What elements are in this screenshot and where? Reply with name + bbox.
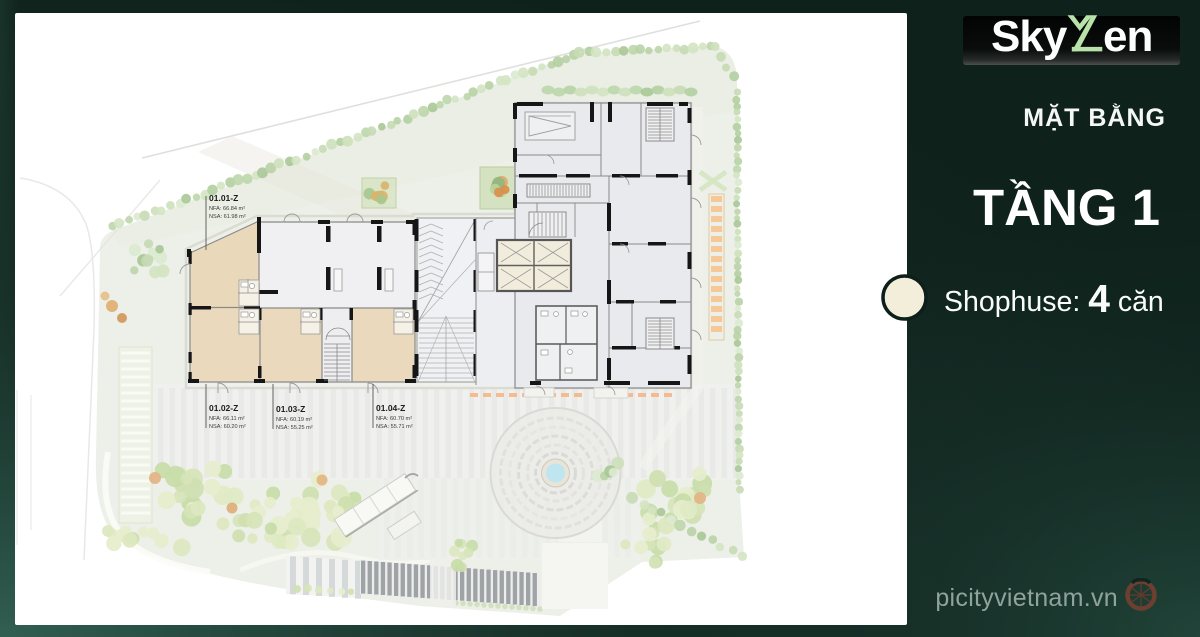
svg-text:01.02-Z: 01.02-Z bbox=[209, 403, 238, 413]
svg-text:NFA: 66.84 m²: NFA: 66.84 m² bbox=[209, 206, 245, 212]
svg-text:NFA: 60.70 m²: NFA: 60.70 m² bbox=[376, 416, 412, 422]
svg-text:NFA: 66.11 m²: NFA: 66.11 m² bbox=[209, 416, 245, 422]
svg-text:NSA: 55.71 m²: NSA: 55.71 m² bbox=[376, 424, 413, 430]
svg-text:en: en bbox=[1103, 12, 1152, 61]
svg-text:Sky: Sky bbox=[991, 12, 1068, 61]
svg-text:01.01-Z: 01.01-Z bbox=[209, 193, 238, 203]
svg-text:picityvietnam.vn: picityvietnam.vn bbox=[935, 584, 1118, 612]
svg-text:NSA: 60.20 m²: NSA: 60.20 m² bbox=[209, 424, 246, 430]
svg-text:NSA: 61.98 m²: NSA: 61.98 m² bbox=[209, 214, 246, 220]
svg-text:NSA: 55.25 m²: NSA: 55.25 m² bbox=[276, 425, 313, 431]
svg-text:01.03-Z: 01.03-Z bbox=[276, 404, 305, 414]
svg-text:TẦNG 1: TẦNG 1 bbox=[973, 178, 1160, 236]
svg-text:MẶT BẰNG: MẶT BẰNG bbox=[1023, 103, 1166, 132]
svg-text:01.04-Z: 01.04-Z bbox=[376, 403, 405, 413]
svg-text:NFA: 60.19 m²: NFA: 60.19 m² bbox=[276, 417, 312, 423]
